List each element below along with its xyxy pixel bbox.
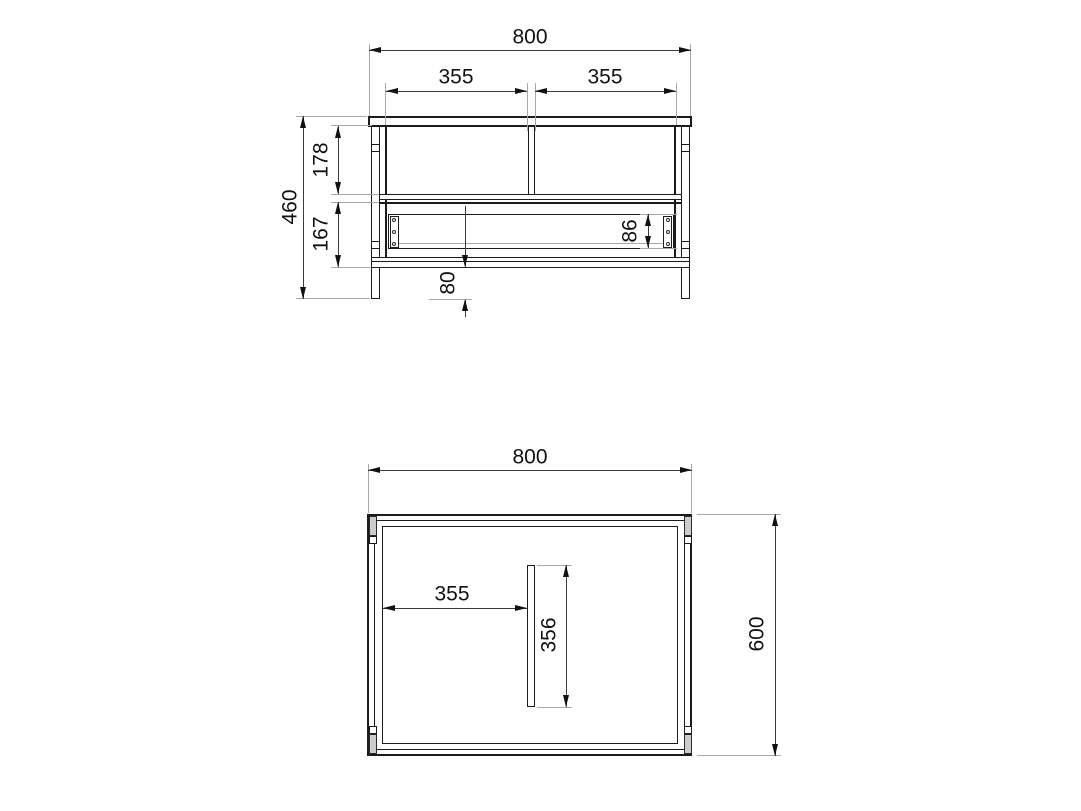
dim-arrow <box>462 255 468 267</box>
dim-arrow <box>368 467 380 473</box>
plan-leg-bottom-left <box>369 734 377 754</box>
screw-hole <box>392 230 396 234</box>
leg-notch <box>681 144 690 152</box>
middle-shelf <box>379 194 682 200</box>
dim-label: 800 <box>512 447 547 468</box>
dim-label: 460 <box>280 189 301 224</box>
dim-arrow <box>679 47 691 53</box>
dim-arrow <box>335 255 341 267</box>
dim-arrow <box>680 467 692 473</box>
plan-leg-notch <box>684 726 692 734</box>
screw-hole <box>666 230 670 234</box>
plan-leg-top-right <box>684 516 692 536</box>
dim-arrow <box>335 126 341 138</box>
tabletop <box>368 116 692 127</box>
dim-arrow <box>335 182 341 194</box>
dim-label: 800 <box>512 27 547 48</box>
dim-arrow <box>386 88 398 94</box>
dim-label: 600 <box>747 616 768 651</box>
dim-label: 355 <box>434 584 469 605</box>
screw-hole <box>666 218 670 222</box>
dim-arrow <box>515 605 527 611</box>
dim-label: 356 <box>539 617 560 652</box>
dim-label: 355 <box>587 67 622 88</box>
dim-arrow <box>772 744 778 756</box>
dim-arrow <box>535 88 547 94</box>
dim-arrow <box>664 88 676 94</box>
dim-arrow <box>515 88 527 94</box>
plan-leg-top-left <box>369 516 377 536</box>
dim-label: 355 <box>438 67 473 88</box>
plan-leg-notch <box>369 536 377 544</box>
dim-arrow <box>300 116 306 128</box>
dim-arrow <box>645 236 651 248</box>
leg-notch <box>371 144 380 152</box>
front-center-divider <box>528 126 535 195</box>
drawer-opening-top-line <box>379 202 682 204</box>
plan-leg-notch <box>684 536 692 544</box>
plan-leg-bottom-right <box>684 734 692 754</box>
drawer-rail-inner-line <box>399 243 663 244</box>
dim-label: 178 <box>311 142 332 177</box>
dim-arrow <box>645 214 651 226</box>
leg-notch <box>371 241 380 249</box>
screw-hole <box>392 218 396 222</box>
dim-label: 80 <box>438 271 459 294</box>
bottom-panel-mid-line <box>371 261 690 262</box>
dim-arrow <box>300 287 306 299</box>
dim-arrow <box>563 565 569 577</box>
leg-notch <box>681 241 690 249</box>
dim-arrow <box>369 47 381 53</box>
screw-hole <box>392 242 396 246</box>
plan-leg-notch <box>369 726 377 734</box>
drawing-canvas: 800 355 355 460 <box>0 0 1081 811</box>
bottom-panel <box>371 257 690 268</box>
plan-center-divider <box>527 565 535 707</box>
dim-arrow <box>772 514 778 526</box>
dim-arrow <box>462 299 468 311</box>
dim-arrow <box>383 605 395 611</box>
dim-label: 86 <box>620 219 641 242</box>
dim-label: 167 <box>311 216 332 251</box>
dim-arrow <box>563 695 569 707</box>
screw-hole <box>666 242 670 246</box>
dim-arrow <box>335 202 341 214</box>
